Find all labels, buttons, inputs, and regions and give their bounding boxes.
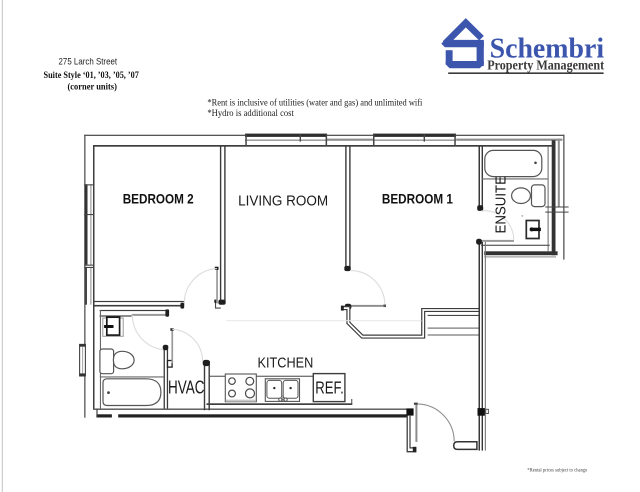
svg-text:275 Larch Street: 275 Larch Street <box>59 57 118 67</box>
svg-text:*Rent is inclusive of utilitie: *Rent is inclusive of utilities (water a… <box>207 97 422 108</box>
svg-text:ENSUITE: ENSUITE <box>493 176 509 234</box>
svg-text:Property Management: Property Management <box>487 58 604 73</box>
svg-text:*Rental prices subject to chan: *Rental prices subject to change <box>527 467 587 473</box>
svg-text:KITCHEN: KITCHEN <box>258 354 314 371</box>
svg-text:BEDROOM 2: BEDROOM 2 <box>123 191 194 206</box>
svg-text:Suite Style ‘01, ’03, ’05, ’07: Suite Style ‘01, ’03, ’05, ’07 <box>44 70 139 81</box>
svg-text:REF.: REF. <box>315 378 344 398</box>
svg-text:BEDROOM 1: BEDROOM 1 <box>382 191 453 206</box>
svg-text:(corner units): (corner units) <box>67 81 116 92</box>
svg-text:*Hydro is additional cost: *Hydro is additional cost <box>207 108 294 119</box>
svg-text:LIVING ROOM: LIVING ROOM <box>238 193 328 210</box>
svg-text:HVAC: HVAC <box>168 378 205 398</box>
